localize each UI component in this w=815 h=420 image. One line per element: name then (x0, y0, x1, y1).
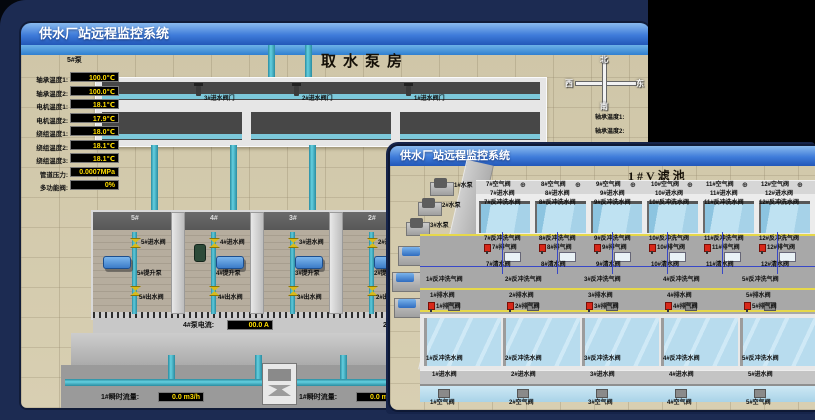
lower-cell-2: 2#反冲洗气阀 2#排水阀 2#排气阀 2#反冲洗水阀 2#进水阀 2#空气阀 (503, 277, 559, 409)
inlet-gate-valve-icon[interactable] (294, 86, 299, 96)
clean-water-valve-label: 9#清水阀 (596, 262, 621, 269)
branch-pipe-icon (168, 355, 175, 381)
upper-cell-9: ⊕ 9#空气阀 9#进水阀 9#反冲洗水阀 9#反冲洗气阀 9#排气阀 9#清水… (592, 182, 648, 274)
inlet-valve-label: 3#进水阀 (590, 372, 615, 379)
compass-east: 东 (636, 78, 644, 89)
pump-bay-3: 3# 3#进水阀 3#提升泵 3#出水阀 (259, 212, 329, 318)
inlet-channel (102, 112, 242, 140)
branch-pipe-icon (255, 355, 262, 381)
exhaust-valve-label: 12#排气阀 (767, 245, 795, 252)
equipment-label: 2#水泵 (442, 203, 461, 210)
exhaust-valve-icon[interactable] (539, 244, 546, 252)
meter-icon (669, 252, 686, 262)
pipe-line (777, 232, 778, 274)
current-label: 4#泵电流: (183, 322, 214, 329)
telemetry-label: 管道压力: (22, 169, 68, 179)
telemetry-label: 电机温度1: (22, 101, 68, 111)
backwash-water-valve-label: 4#反冲洗水阀 (663, 356, 700, 363)
backwash-water-valve-label: 7#反冲洗水阀 (484, 200, 521, 207)
telemetry-value[interactable]: 0.0007MPa (70, 167, 119, 177)
telemetry-label: 绕组温度1: (22, 128, 68, 138)
upper-cell-8: ⊕ 8#空气阀 8#进水阀 8#反冲洗水阀 8#反冲洗气阀 8#排气阀 8#清水… (537, 182, 593, 274)
telemetry-label: 轴承温度1: (595, 115, 624, 122)
air-valve-label: 9#空气阀 (596, 182, 621, 189)
meter-icon (559, 252, 576, 262)
supply-pipe-icon (230, 145, 237, 212)
bay-outlet-label: 5#出水阀 (139, 295, 164, 302)
air-valve-label: 1#空气阀 (430, 400, 455, 407)
exhaust-valve-icon[interactable] (649, 244, 656, 252)
gate-valve-label: 2#进水阀门 (302, 96, 333, 103)
pump-bay-5: 5# 5#进水阀 5#提升泵 5#出水阀 (101, 212, 171, 318)
backwash-water-valve-label: 12#反冲洗水阀 (759, 200, 799, 207)
upper-cell-7: ⊕ 7#空气阀 7#进水阀 7#反冲洗水阀 7#反冲洗气阀 7#排气阀 7#清水… (482, 182, 538, 274)
air-valve-label: 4#空气阀 (667, 400, 692, 407)
pipe-line (667, 232, 668, 274)
upper-cell-12: ⊕ 12#空气阀 12#进水阀 12#反冲洗水阀 12#反冲洗气阀 12#排气阀… (757, 182, 813, 274)
inlet-pipe-icon (305, 45, 312, 78)
backwash-water-valve-label: 10#反冲洗水阀 (649, 200, 689, 207)
compass-icon: 北 西 南 东 (573, 57, 637, 109)
exhaust-valve-label: 5#排气阀 (752, 304, 777, 311)
compass-south: 南 (600, 101, 608, 112)
exhaust-valve-icon[interactable] (428, 302, 435, 310)
telemetry-value[interactable]: 18.1℃ (70, 140, 119, 150)
telemetry-label: 绕组温度2: (22, 142, 68, 152)
backwash-air-valve-label: 1#反冲洗气阀 (426, 277, 463, 284)
air-valve-icon[interactable]: ⊕ (742, 182, 748, 189)
inlet-channel (400, 112, 540, 140)
inlet-channel-structure: 3#进水阀门 2#进水阀门 1#进水阀门 (95, 77, 547, 147)
upper-cell-10: ⊕ 10#空气阀 10#进水阀 10#反冲洗水阀 10#反冲洗气阀 10#排气阀… (647, 182, 703, 274)
exhaust-valve-icon[interactable] (744, 302, 751, 310)
inlet-channel (251, 112, 391, 140)
inlet-valve-label: 4#进水阀 (669, 372, 694, 379)
scene-title-intake: 取水泵房 (321, 50, 409, 71)
meter-icon (614, 252, 631, 262)
equipment-label: 1#水泵 (454, 183, 473, 190)
telemetry-label: 绕组温度3: (22, 155, 68, 165)
back-window-titlebar[interactable]: 供水厂站远程监控系统 (21, 23, 650, 45)
flow-label: 1#瞬时流量: (101, 394, 139, 401)
exhaust-valve-icon[interactable] (759, 244, 766, 252)
air-valve-label: 7#空气阀 (486, 182, 511, 189)
front-window-frame: 供水厂站远程监控系统 1#V滤池 1#水泵 2#水泵 3#水泵 1#风机 2#风… (386, 142, 815, 414)
telemetry-label: 电机温度2: (22, 115, 68, 125)
bay-number: 3# (289, 215, 297, 222)
bay-inlet-label: 5#进水阀 (141, 240, 166, 247)
exhaust-valve-icon[interactable] (484, 244, 491, 252)
bay-number: 5# (131, 215, 139, 222)
inlet-gate-valve-icon[interactable] (196, 86, 201, 96)
inlet-valve-label: 12#进水阀 (765, 191, 793, 198)
exhaust-valve-icon[interactable] (507, 302, 514, 310)
telemetry-label: 多功能阀: (22, 182, 68, 192)
meter-icon (504, 252, 521, 262)
exhaust-valve-label: 11#排气阀 (712, 245, 740, 252)
air-valve-label: 8#空气阀 (541, 182, 566, 189)
air-valve-label: 10#空气阀 (651, 182, 679, 189)
upper-cell-11: ⊕ 11#空气阀 11#进水阀 11#反冲洗水阀 11#反冲洗气阀 11#排气阀… (702, 182, 758, 274)
exhaust-valve-label: 10#排气阀 (657, 245, 685, 252)
backwash-air-valve-label: 10#反冲洗气阀 (649, 236, 689, 243)
lift-pump-icon[interactable] (295, 256, 323, 269)
backwash-water-valve-label: 2#反冲洗水阀 (505, 356, 542, 363)
backwash-air-valve-label: 12#反冲洗气阀 (759, 236, 799, 243)
compass-north: 北 (600, 54, 608, 65)
front-window: 供水厂站远程监控系统 1#V滤池 1#水泵 2#水泵 3#水泵 1#风机 2#风… (390, 146, 815, 410)
telemetry-label: 轴承温度2: (22, 88, 68, 98)
air-valve-label: 5#空气阀 (746, 400, 771, 407)
exhaust-valve-label: 2#排气阀 (515, 304, 540, 311)
bay-number: 2# (368, 215, 376, 222)
top-right-black-panel (648, 0, 815, 146)
air-valve-icon[interactable]: ⊕ (687, 182, 693, 189)
bay-pump-label: 4#提升泵 (216, 271, 241, 278)
air-valve-label: 2#空气阀 (509, 400, 534, 407)
exhaust-valve-label: 4#排气阀 (673, 304, 698, 311)
branch-pipe-icon (340, 355, 347, 381)
backwash-water-valve-label: 1#反冲洗水阀 (426, 356, 463, 363)
equipment-label: 3#水泵 (430, 223, 449, 230)
backwash-air-valve-label: 4#反冲洗气阀 (663, 277, 700, 284)
lower-cell-1: 1#反冲洗气阀 1#排水阀 1#排气阀 1#反冲洗水阀 1#进水阀 1#空气阀 (424, 277, 480, 409)
exhaust-valve-label: 7#排气阀 (492, 245, 517, 252)
channel-water (400, 134, 540, 139)
pipe-line (612, 232, 613, 274)
telemetry-value[interactable]: 18.1℃ (70, 99, 119, 109)
telemetry-value[interactable]: 18.0℃ (70, 126, 119, 136)
bay-outlet-label: 3#出水阀 (297, 295, 322, 302)
inlet-valve-label: 1#进水阀 (432, 372, 457, 379)
compass-bar (602, 59, 607, 107)
back-window-title: 供水厂站远程监控系统 (39, 26, 169, 41)
inlet-valve-label: 11#进水阀 (710, 191, 738, 198)
backwash-air-valve-label: 2#反冲洗气阀 (505, 277, 542, 284)
telemetry-value[interactable]: 0% (70, 180, 119, 190)
lower-cell-5: 5#反冲洗气阀 5#排水阀 5#排气阀 5#反冲洗水阀 5#进水阀 5#空气阀 (740, 277, 796, 409)
backwash-water-valve-label: 3#反冲洗水阀 (584, 356, 621, 363)
exhaust-valve-icon[interactable] (704, 244, 711, 252)
air-valve-icon[interactable]: ⊕ (630, 182, 636, 189)
front-window-title: 供水厂站远程监控系统 (400, 150, 510, 162)
flow-label: 1#瞬时流量: (299, 394, 337, 401)
current-value[interactable]: 00.0 A (227, 320, 273, 330)
backwash-air-valve-label: 11#反冲洗气阀 (704, 236, 744, 243)
inlet-valve-label: 8#进水阀 (545, 191, 570, 198)
telemetry-value[interactable]: 17.9℃ (70, 113, 119, 123)
channel-water (251, 134, 391, 139)
clean-water-valve-label: 10#清水阀 (651, 262, 679, 269)
gate-valve-label: 3#进水阀门 (204, 96, 235, 103)
exhaust-valve-icon[interactable] (665, 302, 672, 310)
clean-water-valve-label: 7#清水阀 (486, 262, 511, 269)
bay-pump-label: 3#提升泵 (295, 271, 320, 278)
drain-valve-label: 4#排水阀 (667, 293, 692, 300)
filter-pool-scene: 1#V滤池 1#水泵 2#水泵 3#水泵 1#风机 2#风机 3#风机 (390, 166, 815, 410)
backwash-water-valve-label: 8#反冲洗水阀 (539, 200, 576, 207)
telemetry-value[interactable]: 18.1℃ (70, 153, 119, 163)
lift-pump-icon[interactable] (103, 256, 131, 269)
air-valve-icon[interactable]: ⊕ (575, 182, 581, 189)
bay-inlet-label: 3#进水阀 (299, 240, 324, 247)
telemetry-value[interactable]: 100.0℃ (70, 72, 119, 82)
bay-outlet-label: 4#出水阀 (218, 295, 243, 302)
drain-valve-label: 5#排水阀 (746, 293, 771, 300)
inlet-valve-label: 10#进水阀 (655, 191, 683, 198)
exhaust-valve-icon[interactable] (586, 302, 593, 310)
inlet-valve-label: 5#进水阀 (748, 372, 773, 379)
drain-valve-label: 1#排水阀 (430, 293, 455, 300)
bay-number: 4# (210, 215, 218, 222)
air-duct-icon (754, 389, 766, 398)
telemetry-label: 轴承温度2: (595, 129, 624, 136)
supply-pipe-icon (309, 145, 316, 212)
pump-bay-4: 4# 4#进水阀 4#提升泵 4#出水阀 (180, 212, 250, 318)
exhaust-valve-icon[interactable] (594, 244, 601, 252)
exhaust-valve-label: 1#排气阀 (436, 304, 461, 311)
air-duct-icon (517, 389, 529, 398)
gate-valve-label: 1#进水阀门 (414, 96, 445, 103)
air-valve-icon[interactable]: ⊕ (797, 182, 803, 189)
exhaust-valve-label: 9#排气阀 (602, 245, 627, 252)
channel-water (102, 134, 242, 139)
motor-device-icon (194, 244, 206, 262)
front-window-titlebar[interactable]: 供水厂站远程监控系统 (390, 146, 815, 166)
supply-pipe-icon (151, 145, 158, 212)
air-valve-label: 11#空气阀 (706, 182, 734, 189)
inlet-valve-label: 2#进水阀 (511, 372, 536, 379)
air-duct-icon (596, 389, 608, 398)
pipe-line (502, 232, 503, 274)
air-valve-icon[interactable]: ⊕ (520, 182, 526, 189)
inlet-gate-valve-icon[interactable] (406, 86, 411, 96)
air-valve-label: 3#空气阀 (588, 400, 613, 407)
clean-water-valve-label: 12#清水阀 (761, 262, 789, 269)
backwash-water-valve-label: 5#反冲洗水阀 (742, 356, 779, 363)
flow-meter-icon[interactable] (262, 363, 297, 405)
meter-icon (779, 252, 796, 262)
lift-pump-icon[interactable] (216, 256, 244, 269)
inlet-valve-label: 9#进水阀 (600, 191, 625, 198)
backwash-water-valve-label: 9#反冲洗水阀 (594, 200, 631, 207)
telemetry-label: 轴承温度1: (22, 74, 68, 84)
exhaust-valve-label: 8#排气阀 (547, 245, 572, 252)
air-duct-icon (675, 389, 687, 398)
bay-pump-label: 5#提升泵 (137, 271, 162, 278)
backwash-air-valve-label: 5#反冲洗气阀 (742, 277, 779, 284)
backwash-air-valve-label: 3#反冲洗气阀 (584, 277, 621, 284)
inlet-pipe-icon (268, 45, 275, 78)
panel-header: 5#泵 (67, 57, 82, 64)
telemetry-value[interactable]: 100.0℃ (70, 86, 119, 96)
backwash-water-valve-label: 11#反冲洗水阀 (704, 200, 744, 207)
clean-water-valve-label: 8#清水阀 (541, 262, 566, 269)
drain-valve-label: 3#排水阀 (588, 293, 613, 300)
compass-west: 西 (565, 78, 573, 89)
air-valve-label: 12#空气阀 (761, 182, 789, 189)
pipe-line (722, 232, 723, 274)
bay-inlet-label: 4#进水阀 (220, 240, 245, 247)
drain-valve-label: 2#排水阀 (509, 293, 534, 300)
meter-icon (724, 252, 741, 262)
flow-value[interactable]: 0.0 m3/h (158, 392, 204, 402)
inlet-valve-label: 7#进水阀 (490, 191, 515, 198)
pipe-line (557, 232, 558, 274)
scada-desktop: 供水厂站远程监控系统 取水泵房 3#进水阀门 2#进水阀门 1#进水阀门 (0, 0, 815, 420)
lower-cell-4: 4#反冲洗气阀 4#排水阀 4#排气阀 4#反冲洗水阀 4#进水阀 4#空气阀 (661, 277, 717, 409)
air-duct-icon (438, 389, 450, 398)
clean-water-valve-label: 11#清水阀 (706, 262, 734, 269)
exhaust-valve-label: 3#排气阀 (594, 304, 619, 311)
lower-cell-3: 3#反冲洗气阀 3#排水阀 3#排气阀 3#反冲洗水阀 3#进水阀 3#空气阀 (582, 277, 638, 409)
